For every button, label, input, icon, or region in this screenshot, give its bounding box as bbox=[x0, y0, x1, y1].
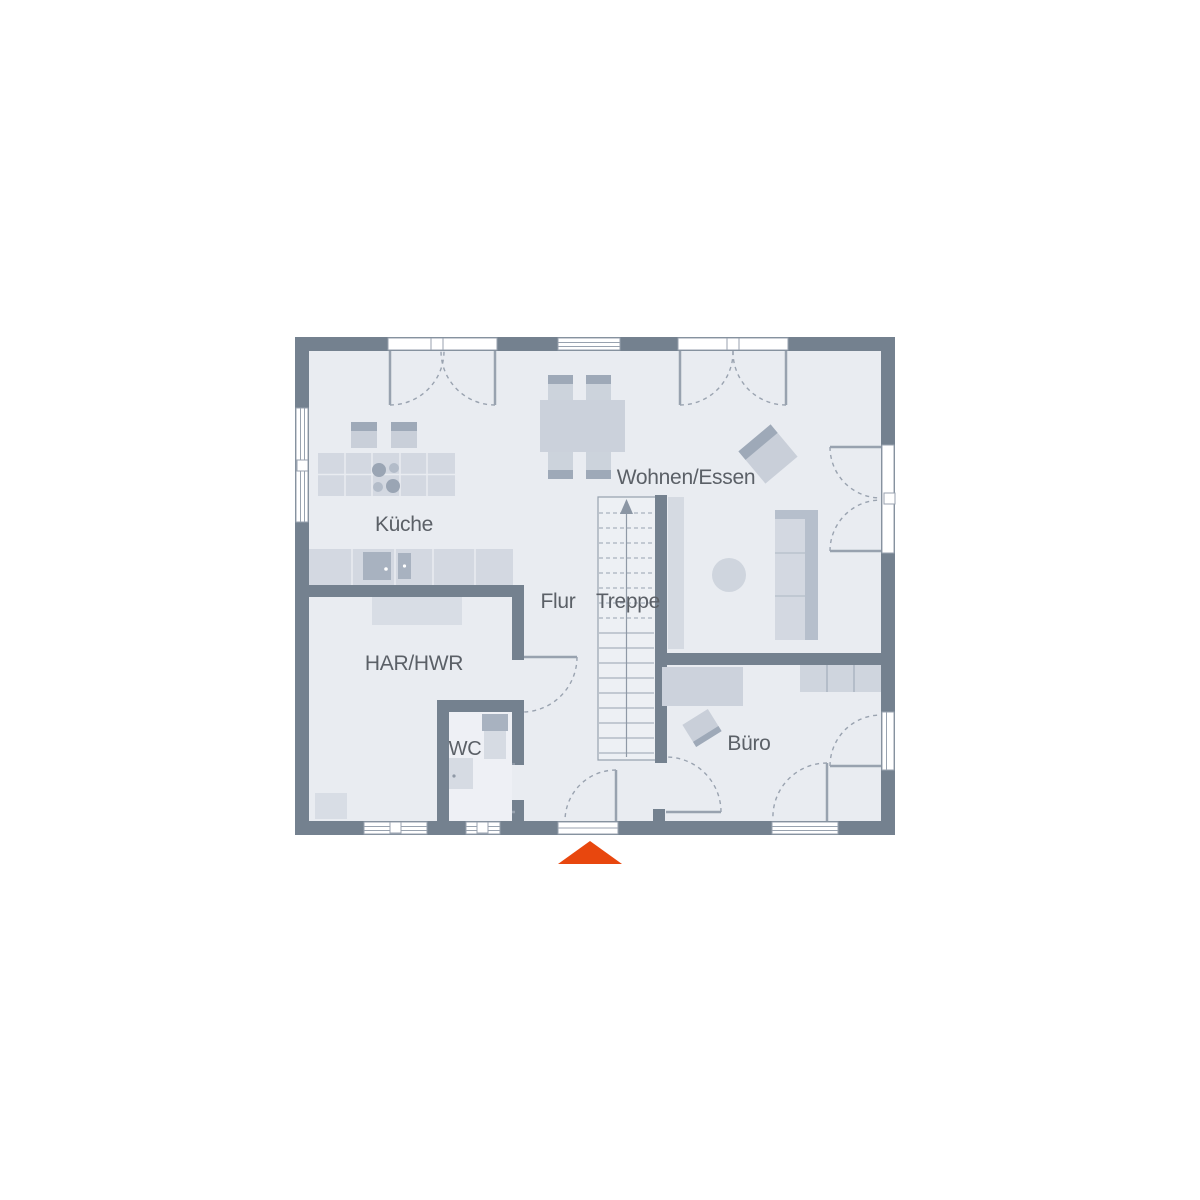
shelf bbox=[800, 665, 881, 692]
terrace-door-office-bottom-opening bbox=[772, 822, 838, 834]
wall-wc-right bbox=[512, 712, 524, 765]
bar-stool bbox=[391, 422, 417, 448]
toilet-icon bbox=[482, 714, 508, 759]
label-wohnen-essen: Wohnen/Essen bbox=[617, 466, 755, 489]
dining-chair bbox=[586, 375, 611, 404]
bar-stool bbox=[351, 422, 377, 448]
wall-flur-har bbox=[512, 585, 524, 660]
kitchen-island bbox=[318, 453, 455, 496]
entrance-arrow-icon bbox=[558, 841, 622, 864]
dining-chair bbox=[586, 450, 611, 479]
window-top bbox=[558, 338, 620, 350]
floor-plan-drawing: Küche Wohnen/Essen Flur Treppe HAR/HWR W… bbox=[0, 0, 1200, 1200]
window-wc-handle-icon bbox=[477, 822, 488, 833]
desk bbox=[662, 667, 743, 706]
patio-door-top-left-handle-icon bbox=[431, 338, 443, 350]
label-wc: WC bbox=[449, 738, 482, 760]
sink-icon bbox=[363, 552, 391, 580]
staircase bbox=[598, 497, 655, 760]
dining-table bbox=[540, 400, 625, 452]
sideboard bbox=[668, 497, 684, 649]
kitchen-counter bbox=[309, 549, 513, 585]
wall-wc-top bbox=[437, 700, 524, 712]
round-rug bbox=[712, 558, 746, 592]
floor-plan-page: Küche Wohnen/Essen Flur Treppe HAR/HWR W… bbox=[0, 0, 1200, 1200]
terrace-door-office-right-opening bbox=[882, 712, 894, 770]
label-treppe: Treppe bbox=[596, 590, 660, 613]
label-buero: Büro bbox=[727, 732, 770, 755]
wall-wc-right-stub bbox=[512, 800, 524, 821]
wc-fixtures bbox=[449, 712, 512, 821]
window-har-handle-icon bbox=[390, 822, 401, 833]
window-kitchen-handle-icon bbox=[297, 460, 308, 471]
wall-kitchen-har bbox=[309, 585, 524, 597]
patio-door-top-right-handle-icon bbox=[727, 338, 739, 350]
har-cabinet bbox=[372, 597, 462, 625]
label-har-hwr: HAR/HWR bbox=[365, 652, 463, 675]
dining-chair bbox=[548, 375, 573, 404]
wall-wohnen-buero bbox=[655, 653, 881, 665]
dining-chair bbox=[548, 450, 573, 479]
sofa bbox=[775, 510, 818, 640]
label-kueche: Küche bbox=[375, 513, 433, 536]
label-flur: Flur bbox=[541, 590, 576, 613]
wall-hall-buero-stub bbox=[653, 809, 665, 821]
wall-stair bbox=[655, 495, 667, 763]
french-door-living-handle-icon bbox=[884, 493, 895, 504]
sink-small-icon bbox=[449, 758, 473, 789]
wall-wc-left bbox=[437, 712, 449, 821]
har-appliance bbox=[315, 793, 347, 819]
